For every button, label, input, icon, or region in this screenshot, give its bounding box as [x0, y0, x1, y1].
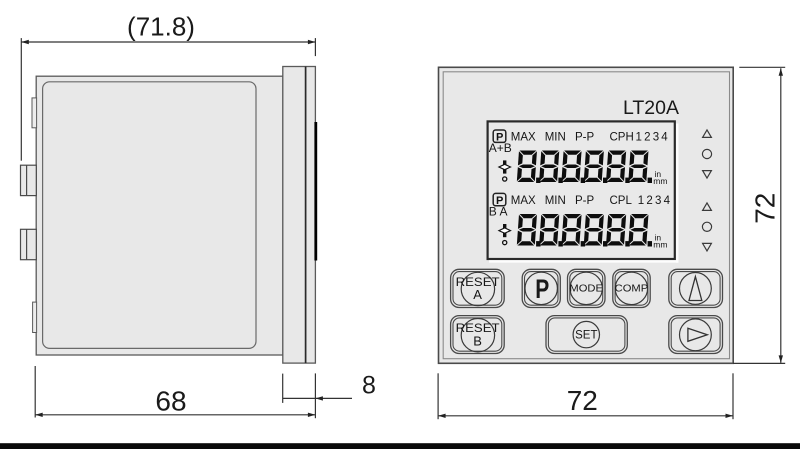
svg-text:B: B: [473, 334, 482, 349]
svg-text:1234: 1234: [638, 195, 672, 207]
svg-text:P-P: P-P: [575, 195, 595, 207]
svg-text:1234: 1234: [636, 132, 670, 144]
svg-text:MIN: MIN: [545, 132, 566, 144]
svg-text:P-P: P-P: [575, 132, 595, 144]
svg-text:CPL: CPL: [610, 195, 633, 207]
svg-text:MIN: MIN: [545, 195, 566, 207]
svg-text:P: P: [535, 274, 549, 304]
svg-text:72: 72: [567, 385, 598, 416]
svg-text:8: 8: [362, 372, 376, 400]
svg-text:72: 72: [750, 193, 781, 224]
svg-text:A+B: A+B: [489, 141, 512, 155]
svg-text:SET: SET: [575, 330, 597, 342]
svg-text:A: A: [473, 287, 482, 302]
svg-text:(71.8): (71.8): [127, 12, 195, 42]
svg-text:MODE: MODE: [569, 282, 603, 294]
svg-text:COMP: COMP: [615, 282, 649, 294]
svg-text:CPH: CPH: [610, 132, 634, 144]
svg-text:mm: mm: [653, 176, 667, 186]
svg-text:mm: mm: [653, 240, 667, 250]
svg-text:MAX: MAX: [511, 195, 536, 207]
svg-text:MAX: MAX: [511, 132, 536, 144]
svg-text:68: 68: [155, 386, 186, 417]
svg-text:LT20A: LT20A: [623, 97, 679, 119]
svg-text:B A: B A: [489, 204, 508, 218]
